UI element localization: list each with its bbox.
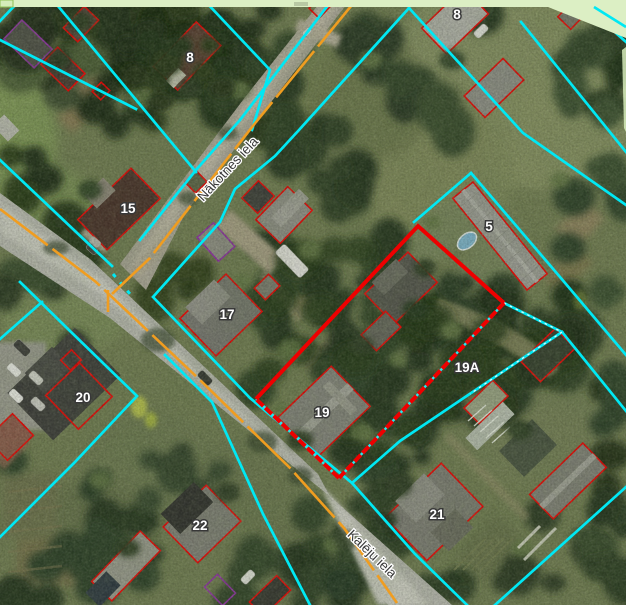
svg-text:5: 5 [485,219,493,234]
svg-text:19A: 19A [455,360,480,375]
svg-text:8: 8 [186,50,194,65]
svg-text:22: 22 [192,518,207,533]
svg-text:17: 17 [219,307,234,322]
svg-text:8: 8 [453,7,461,22]
svg-text:21: 21 [429,507,445,522]
svg-text:19: 19 [314,405,329,420]
svg-text:15: 15 [120,201,136,216]
svg-text:20: 20 [75,390,90,405]
